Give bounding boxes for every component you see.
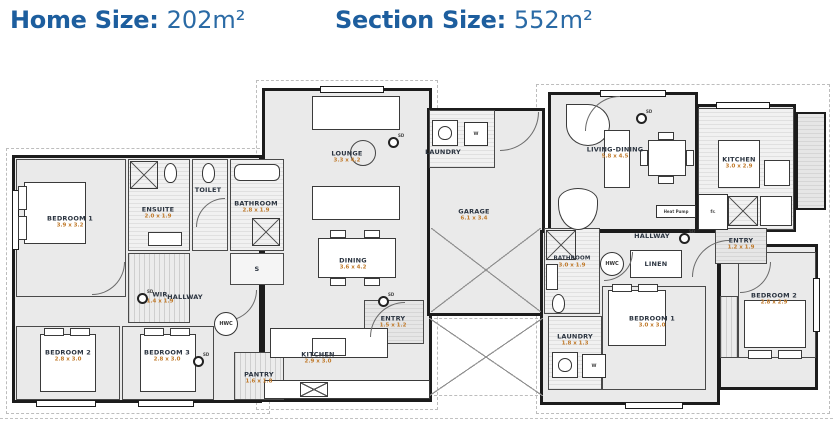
- toilet-bathroom-right: [552, 294, 565, 313]
- chair-living-4: [658, 176, 674, 184]
- label-ensuite-left: ENSUITE 2.0 x 1.9: [142, 206, 175, 221]
- label-living-dining-right: LIVING-DINING 5.8 x 4.5: [587, 146, 644, 161]
- label-dining-left: DINING 3.6 x 4.2: [339, 257, 367, 272]
- label-entry-right: ENTRY 1.2 x 1.9: [728, 237, 755, 252]
- kitchen-bench-left: [264, 380, 430, 399]
- pillow-bedroom2-left-1: [44, 328, 64, 336]
- pillow-bedroom1-right-2: [638, 284, 658, 292]
- home-size-label: Home Size:: [10, 6, 159, 34]
- label-storage-left: S: [255, 265, 260, 273]
- porch-deck-top-right: [796, 112, 826, 210]
- section-size-value: 552m²: [514, 6, 593, 34]
- pillow-bedroom2-left-2: [70, 328, 90, 336]
- smoke-detector-hallway-right: SD: [679, 233, 690, 244]
- label-bedroom3-left: BEDROOM 3 2.8 x 3.0: [144, 349, 190, 364]
- pillow-bedroom1-left-2: [18, 216, 27, 240]
- vanity-ensuite-left: [148, 232, 182, 246]
- bed-bedroom2-right: [744, 300, 806, 348]
- hwc-left: HWC: [214, 312, 238, 336]
- bathtub-left: [234, 164, 280, 181]
- pillow-bedroom2-right-1: [748, 350, 772, 359]
- cooktop-left: [300, 382, 328, 397]
- driveway-cross-lines: [429, 318, 543, 396]
- smoke-detector-bedroom3-left: SD: [193, 356, 204, 367]
- shower-ensuite-left: [130, 161, 158, 189]
- home-size-header: Home Size: 202m²: [10, 6, 245, 34]
- room-wir-left: [128, 253, 190, 323]
- label-laundry-right: LAUNDRY 1.8 x 1.3: [557, 333, 593, 348]
- wardrobe-bedroom2-right: [720, 296, 738, 358]
- section-size-label: Section Size:: [335, 6, 506, 34]
- garage-cross: [431, 228, 541, 312]
- label-toilet-left: TOILET: [195, 186, 222, 194]
- smoke-detector-hallway-left: SD: [137, 293, 148, 304]
- smoke-detector-lounge: SD: [388, 137, 399, 148]
- label-garage: GARAGE 6.1 x 3.4: [458, 208, 489, 223]
- label-kitchen-right: KITCHEN 3.0 x 2.9: [722, 156, 755, 171]
- heat-pump: Heat Pump: [656, 205, 696, 218]
- pillow-bedroom1-right-1: [612, 284, 632, 292]
- sofa-lounge-2: [312, 186, 400, 220]
- label-bedroom2-left: BEDROOM 2 2.8 x 3.0: [45, 349, 91, 364]
- laundry-tub-basin-right: [558, 358, 572, 372]
- window-kitchen-right-top: [716, 102, 770, 109]
- label-bathroom-left: BATHROOM 2.8 x 1.9: [234, 200, 277, 215]
- label-bedroom2-right: BEDROOM 2 2.8 x 2.9: [751, 292, 797, 307]
- dining-chair-4: [364, 278, 380, 286]
- chair-living-3: [658, 132, 674, 140]
- smoke-detector-entry-left: SD: [378, 296, 389, 307]
- section-size-header: Section Size: 552m²: [335, 6, 593, 34]
- pillow-bedroom1-left-1: [18, 186, 27, 210]
- fridge-right: fr.: [698, 194, 728, 230]
- label-bedroom1-left: BEDROOM 1 3.9 x 3.2: [47, 215, 93, 230]
- washer-left: W: [464, 122, 488, 146]
- label-entry-left: ENTRY 1.5 x 1.2: [380, 315, 407, 330]
- label-hallway-right: HALLWAY: [634, 232, 670, 240]
- label-hallway-left: HALLWAY: [167, 293, 203, 301]
- pillow-bedroom3-left-1: [144, 328, 164, 336]
- label-bathroom-right: BATHROOM 3.0 x 1.9: [553, 255, 590, 268]
- table-living-dining: [648, 140, 686, 176]
- hwc-right: HWC: [600, 252, 624, 276]
- window-lounge-top: [320, 86, 384, 93]
- label-pantry-left: PANTRY 1.6 x 1.8: [244, 371, 274, 386]
- window-bedroom1-right-bottom: [625, 402, 683, 409]
- window-living-top: [600, 90, 666, 97]
- label-bedroom1-right: BEDROOM 1 3.0 x 3.0: [629, 315, 675, 330]
- chair-living-2: [686, 150, 694, 166]
- shower-bathroom-left: [252, 218, 280, 246]
- dining-chair-2: [364, 230, 380, 238]
- window-bedroom2-left-bottom: [36, 400, 96, 407]
- label-laundry-left: LAUNDRY: [425, 148, 461, 156]
- dining-chair-3: [330, 278, 346, 286]
- smoke-detector-living-right: SD: [636, 113, 647, 124]
- sofa-lounge-1: [312, 96, 400, 130]
- window-bedroom2-right: [813, 278, 820, 332]
- label-kitchen-left: KITCHEN 2.9 x 3.0: [301, 351, 334, 366]
- toilet-wc-left: [202, 163, 215, 183]
- dining-chair-1: [330, 230, 346, 238]
- pillow-bedroom2-right-2: [778, 350, 802, 359]
- laundry-tub-basin-left: [438, 126, 452, 140]
- window-bedroom3-left-bottom: [138, 400, 194, 407]
- label-linen-right: LINEN: [645, 260, 668, 268]
- cooktop-right: [760, 196, 792, 226]
- washer-right: W: [582, 354, 606, 378]
- toilet-ensuite-left: [164, 163, 177, 183]
- bed-bedroom1-left: [24, 182, 86, 244]
- floor-plan-page: { "header": { "home_size_label": "Home S…: [0, 0, 833, 427]
- label-lounge-left: LOUNGE 3.3 x 4.2: [331, 150, 362, 165]
- dishwasher-right: [728, 196, 758, 226]
- home-size-value: 202m²: [167, 6, 246, 34]
- section-boundary-bottom: [0, 418, 833, 419]
- kitchen-island-right: [764, 160, 790, 186]
- pillow-bedroom3-left-2: [170, 328, 190, 336]
